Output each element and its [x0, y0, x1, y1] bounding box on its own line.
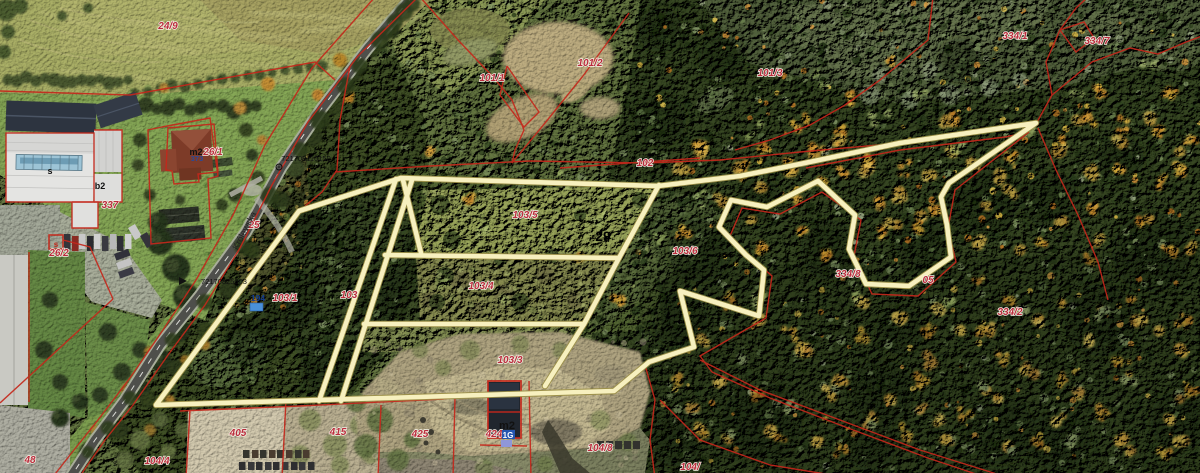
- svg-text:103/1: 103/1: [272, 293, 297, 304]
- svg-text:337: 337: [102, 200, 119, 211]
- svg-text:48: 48: [23, 455, 36, 466]
- svg-text:103/5: 103/5: [512, 210, 537, 221]
- svg-text:104/: 104/: [680, 462, 701, 473]
- svg-text:103/3: 103/3: [497, 355, 522, 366]
- svg-text:405: 405: [229, 428, 247, 439]
- svg-text:101/2: 101/2: [577, 58, 602, 69]
- svg-text:s: s: [47, 166, 52, 176]
- svg-text:72170825003: 72170825003: [201, 277, 247, 286]
- svg-text:334/1: 334/1: [1002, 31, 1027, 42]
- svg-text:05: 05: [922, 275, 934, 286]
- svg-text:1G: 1G: [503, 431, 514, 440]
- svg-text:104/4: 104/4: [144, 456, 169, 467]
- svg-text:104/8: 104/8: [587, 443, 612, 454]
- svg-text:103: 103: [341, 290, 358, 301]
- svg-text:101/3: 101/3: [757, 68, 782, 79]
- svg-text:415: 415: [329, 427, 347, 438]
- svg-text:334/8: 334/8: [835, 269, 860, 280]
- svg-text:s: s: [54, 240, 59, 249]
- svg-text:425: 425: [411, 429, 429, 440]
- svg-text:b2: b2: [95, 181, 106, 191]
- svg-text:334/7: 334/7: [1084, 36, 1109, 47]
- svg-text:721708110150: 721708110150: [281, 154, 331, 163]
- svg-text:24/9: 24/9: [157, 21, 178, 32]
- svg-text:26/2: 26/2: [48, 248, 69, 259]
- svg-text:373: 373: [191, 154, 204, 163]
- svg-text:103/4: 103/4: [468, 281, 493, 292]
- svg-text:s: s: [113, 459, 117, 468]
- svg-text:194: 194: [251, 293, 265, 303]
- svg-text:334/2: 334/2: [997, 307, 1022, 318]
- svg-text:103/6: 103/6: [672, 246, 697, 257]
- svg-text:102: 102: [637, 158, 654, 169]
- svg-text:29: 29: [595, 228, 611, 244]
- svg-text:101/1: 101/1: [479, 73, 504, 84]
- svg-text:26/1: 26/1: [202, 147, 223, 158]
